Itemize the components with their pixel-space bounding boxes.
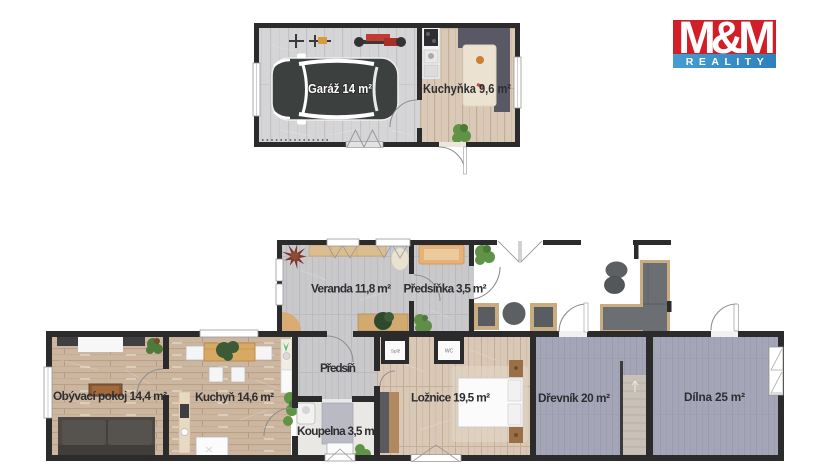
svg-text:REALITY: REALITY [686,56,769,68]
svg-text:WC: WC [445,349,454,355]
svg-text:Spíž: Spíž [391,349,401,354]
svg-text:Předsíňka 3,5 m²: Předsíňka 3,5 m² [404,282,487,296]
svg-text:Kuchyň 14,6 m²: Kuchyň 14,6 m² [195,390,274,404]
svg-text:Veranda 11,8 m²: Veranda 11,8 m² [311,282,391,296]
svg-text:Kuchyňka 9,6 m²: Kuchyňka 9,6 m² [423,81,512,96]
svg-text:Koupelna 3,5 m²: Koupelna 3,5 m² [297,424,378,438]
svg-text:Garáž 14 m²: Garáž 14 m² [308,81,373,96]
svg-text:Ložnice 19,5 m²: Ložnice 19,5 m² [411,391,490,405]
svg-text:Dřevník 20 m²: Dřevník 20 m² [538,391,610,405]
svg-text:Dílna 25 m²: Dílna 25 m² [684,390,745,404]
svg-text:Předsíň: Předsíň [320,361,356,375]
svg-text:Obývací pokoj 14,4 m²: Obývací pokoj 14,4 m² [53,389,167,403]
